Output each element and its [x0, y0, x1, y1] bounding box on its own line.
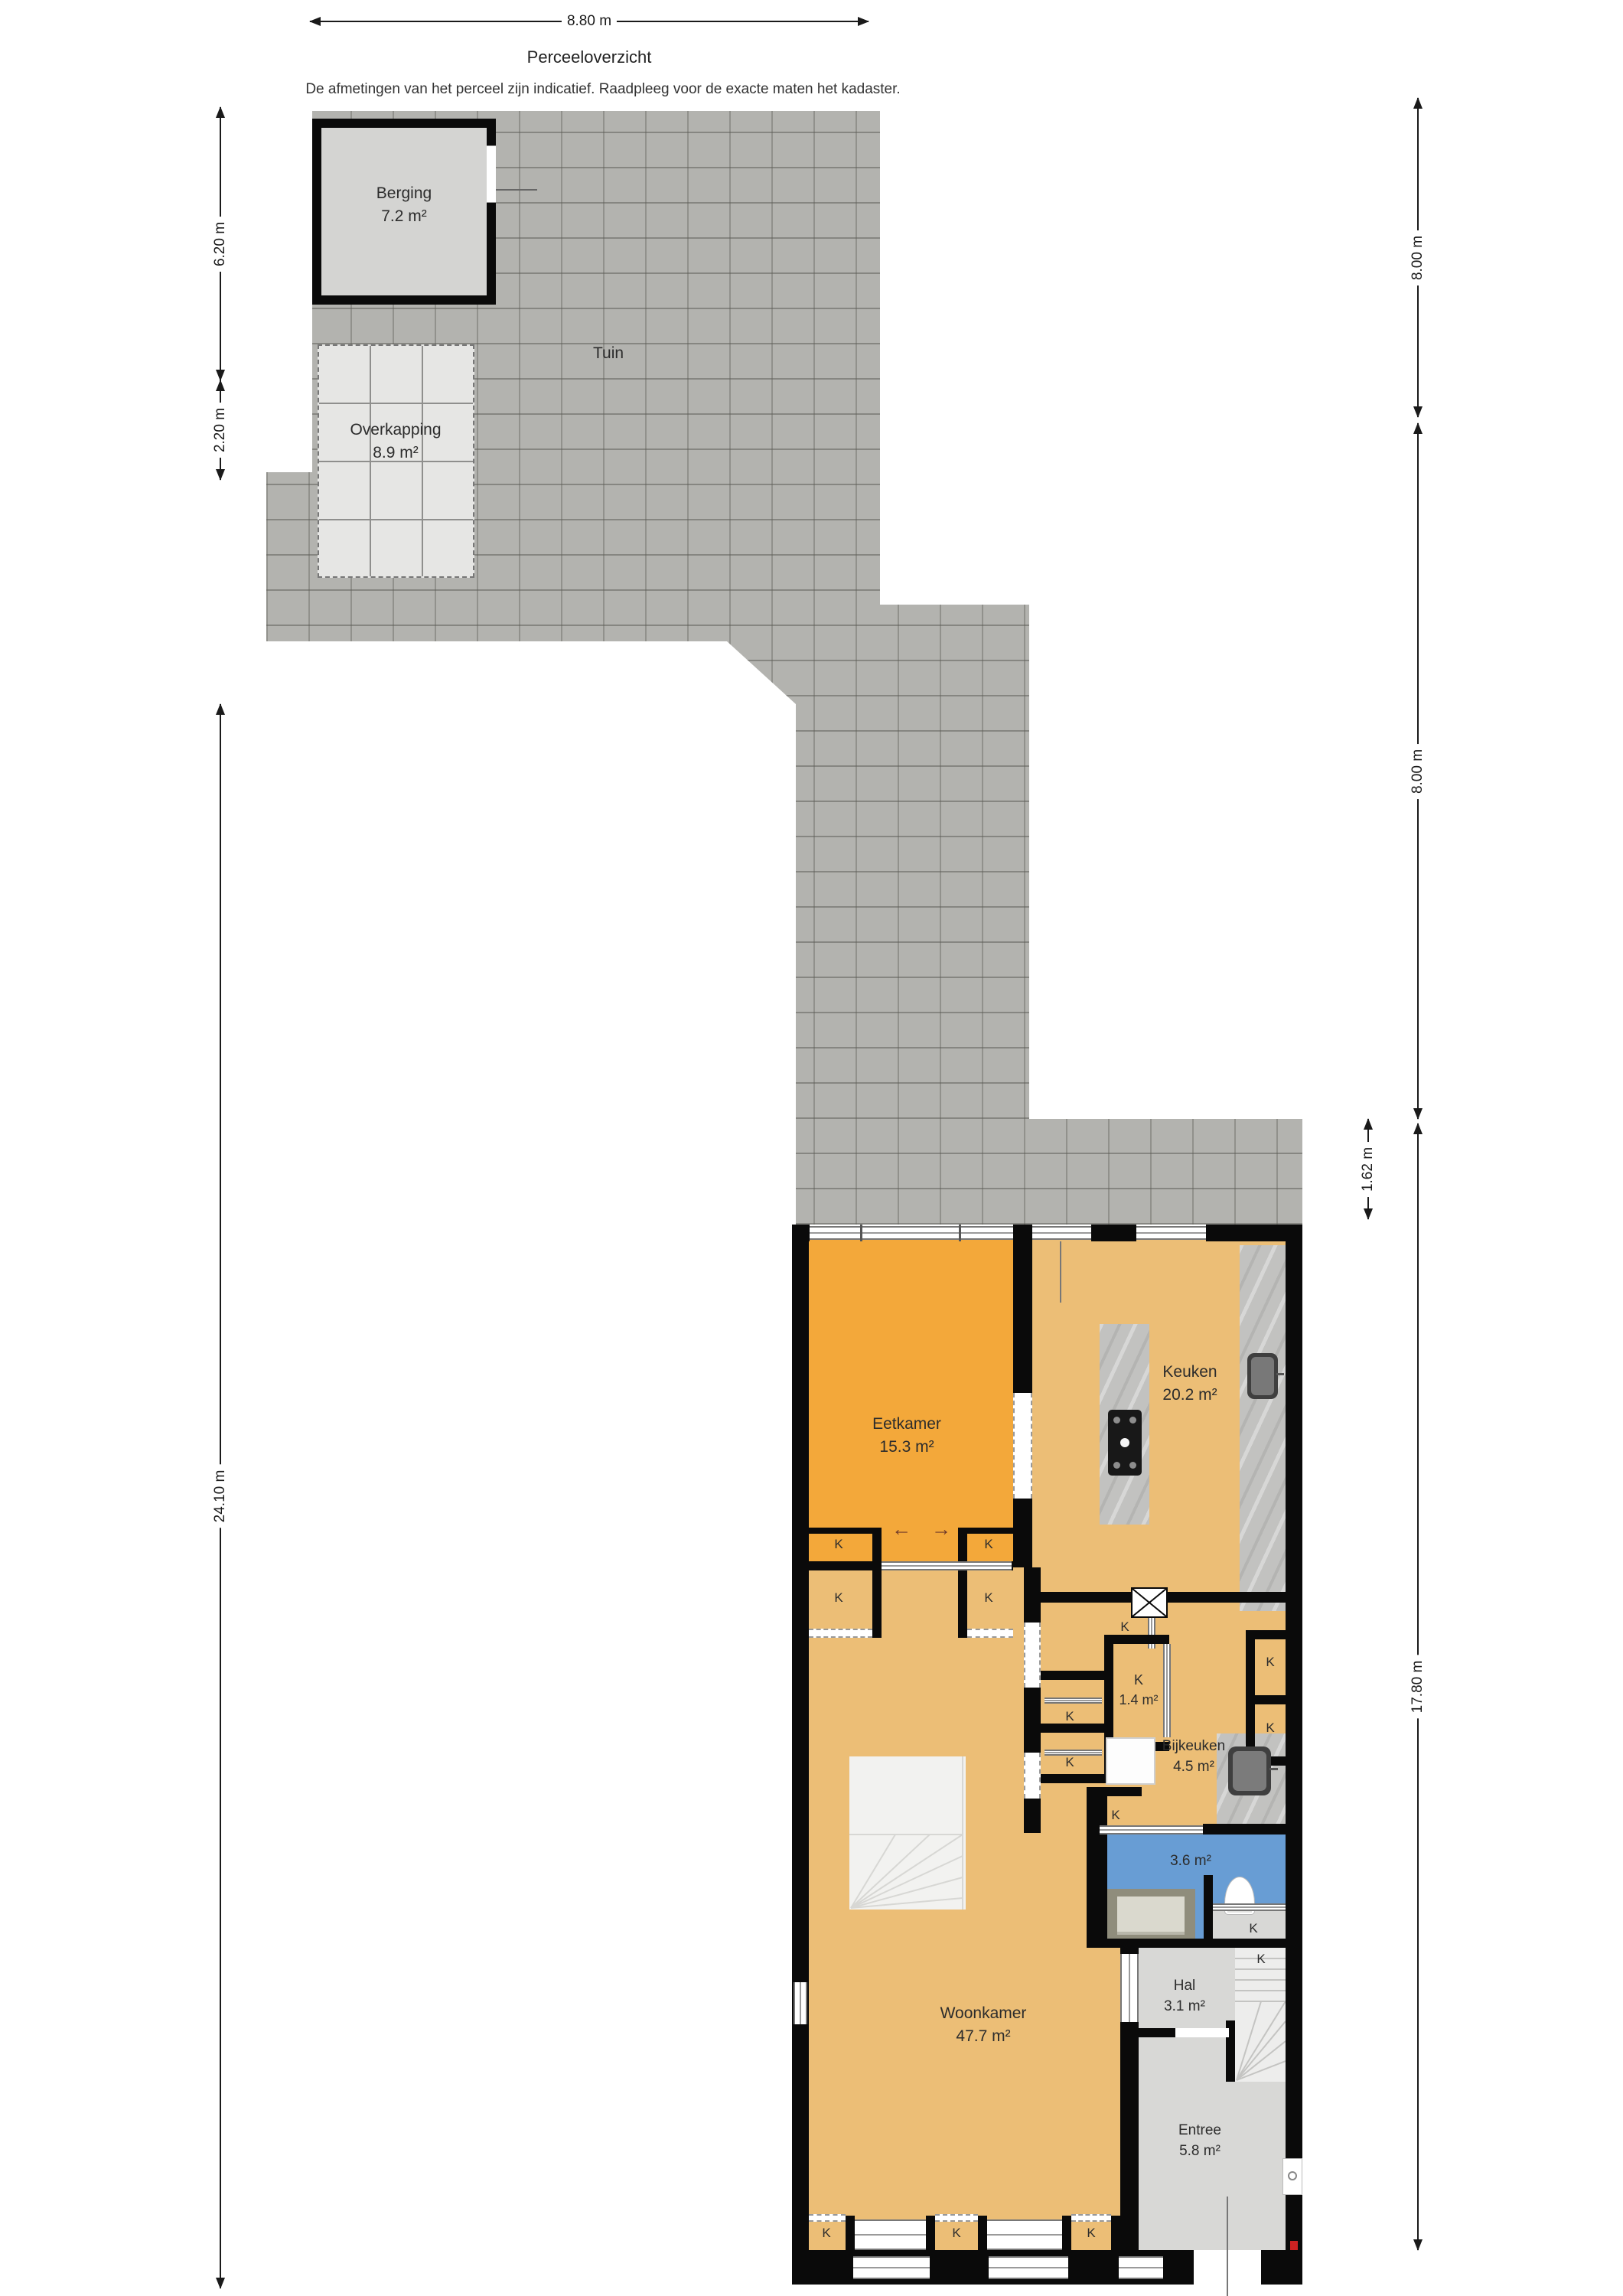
- arrowhead-down-icon: [1413, 1108, 1423, 1120]
- front-door-axis: [1227, 2197, 1228, 2296]
- closet-front: [967, 1629, 1013, 1638]
- overkapping-name: Overkapping: [350, 419, 441, 442]
- wall: [1041, 1724, 1104, 1733]
- door-opening: [1024, 1753, 1041, 1799]
- wall: [1168, 1592, 1286, 1603]
- door-opening: [1175, 2028, 1229, 2037]
- kitchen-counter: [1240, 1245, 1286, 1611]
- closet-label: K: [1111, 1808, 1119, 1823]
- window: [810, 1226, 1013, 1240]
- arrowhead-up-icon: [1364, 1118, 1373, 1130]
- closet-label: K: [984, 1537, 992, 1552]
- washing-machine-icon: [1106, 1737, 1155, 1785]
- dimension-right-middle: 8.00 m: [1410, 423, 1426, 1119]
- window-recess: [855, 2219, 926, 2250]
- entree-area: 5.8 m²: [1178, 2141, 1221, 2161]
- burner: [1129, 1462, 1136, 1469]
- berging-door-opening: [487, 145, 496, 203]
- wall: [1203, 1824, 1286, 1835]
- hal-name: Hal: [1164, 1975, 1205, 1996]
- dimension-label: 8.00 m: [1409, 230, 1427, 285]
- x-brace-icon: [1133, 1589, 1166, 1616]
- meter-niche: [1282, 2158, 1302, 2195]
- wall: [1041, 1774, 1104, 1783]
- faucet: [1269, 1768, 1278, 1770]
- wall: [1255, 1695, 1286, 1704]
- entree-name: Entree: [1178, 2120, 1221, 2141]
- dimension-left-total: 24.10 m: [213, 704, 228, 2288]
- faucet: [1276, 1373, 1284, 1375]
- window-recess: [987, 2219, 1062, 2250]
- keuken-label: Keuken 20.2 m²: [1162, 1361, 1217, 1407]
- door-opening: [1024, 1623, 1041, 1688]
- dimension-label: 8.00 m: [1409, 743, 1427, 798]
- kitchen-sink-icon: [1247, 1353, 1278, 1399]
- closet-label: K: [1065, 1755, 1074, 1770]
- arrowhead-down-icon: [216, 469, 225, 481]
- wall: [1087, 1939, 1302, 1948]
- eetkamer-area: 15.3 m²: [872, 1436, 941, 1459]
- woonkamer-name: Woonkamer: [940, 2002, 1027, 2025]
- closet-label: K: [1266, 1720, 1274, 1736]
- dimension-label: 24.10 m: [211, 1465, 230, 1528]
- dimension-top-width: 8.80 m: [310, 12, 869, 31]
- arrowhead-left-icon: [309, 17, 321, 26]
- dimension-right-strip: 1.62 m: [1361, 1119, 1376, 1219]
- keuken-name: Keuken: [1162, 1361, 1217, 1384]
- berging-label: Berging 7.2 m²: [376, 182, 432, 228]
- wall: [1286, 1225, 1302, 2285]
- kast-area: 1.4 m²: [1119, 1690, 1158, 1710]
- woonkamer-label: Woonkamer 47.7 m²: [940, 2002, 1027, 2048]
- arrowhead-up-icon: [216, 106, 225, 118]
- dimension-label: 17.80 m: [1409, 1655, 1427, 1719]
- sliding-door-track: [1100, 1825, 1203, 1835]
- closet-label: K: [834, 1590, 842, 1606]
- arrowhead-up-icon: [216, 703, 225, 715]
- eetkamer-label: Eetkamer 15.3 m²: [872, 1413, 941, 1459]
- wall: [978, 2216, 987, 2250]
- wall: [1032, 1592, 1131, 1603]
- closet-rail: [1045, 1698, 1102, 1704]
- eetkamer-floor: [809, 1238, 1013, 1561]
- bijkeuken-sink-icon: [1228, 1746, 1271, 1795]
- sliding-door-arrow-left-icon: ←: [891, 1518, 911, 1541]
- dimension-left-lower: 2.20 m: [213, 380, 228, 480]
- window: [853, 2256, 930, 2279]
- wall: [1041, 1671, 1104, 1680]
- arrowhead-down-icon: [1364, 1208, 1373, 1220]
- arrowhead-up-icon: [216, 380, 225, 391]
- hal-label: Hal 3.1 m²: [1164, 1975, 1205, 2017]
- canopy-grid-line: [319, 403, 473, 404]
- door-axis: [1060, 1241, 1061, 1303]
- window: [1213, 1903, 1286, 1911]
- closet-front: [809, 1629, 872, 1638]
- wall: [1087, 1787, 1107, 1948]
- closet-label: K: [1256, 1952, 1265, 1967]
- closet-label: K: [1120, 1619, 1129, 1635]
- closet-label: K: [834, 1537, 842, 1552]
- stairs-steps-icon: [1235, 1948, 1286, 2082]
- window: [1136, 1226, 1206, 1240]
- wall: [1096, 1787, 1142, 1796]
- wall: [809, 1528, 882, 1534]
- knob: [1120, 1438, 1129, 1447]
- closet-label: K: [952, 2226, 960, 2241]
- window-mullion: [959, 1225, 961, 1241]
- dimension-label: 2.20 m: [211, 403, 230, 458]
- badkamer-label: 3.6 m²: [1170, 1850, 1211, 1873]
- eetkamer-name: Eetkamer: [872, 1413, 941, 1436]
- wall: [1013, 1499, 1032, 1567]
- arrowhead-up-icon: [1413, 422, 1423, 434]
- closet-label: K: [1087, 2226, 1095, 2241]
- bijkeuken-name: Bijkeuken: [1162, 1736, 1225, 1756]
- closet-label: K: [984, 1590, 992, 1606]
- meter-red-mark: [1290, 2241, 1298, 2250]
- wall: [1091, 1225, 1136, 1241]
- sliding-door-track: [882, 1561, 1012, 1570]
- arrowhead-down-icon: [216, 2278, 225, 2289]
- tuin-label: Tuin: [593, 344, 624, 363]
- wall: [1104, 1635, 1169, 1644]
- stairs-woonkamer: [849, 1756, 966, 1910]
- wall: [1013, 1241, 1032, 1393]
- woonkamer-area: 47.7 m²: [940, 2025, 1027, 2048]
- dimension-label: 8.80 m: [562, 12, 617, 31]
- badkamer-area: 3.6 m²: [1170, 1850, 1211, 1873]
- floorplan-page: 8.80 m Perceeloverzicht De afmetingen va…: [0, 0, 1623, 2296]
- arrowhead-up-icon: [1413, 97, 1423, 109]
- stairs-steps-icon: [849, 1756, 966, 1910]
- sink-basin: [1251, 1357, 1274, 1395]
- window-mullion: [860, 1225, 862, 1241]
- wall: [1013, 1225, 1032, 1241]
- dimension-left-upper: 6.20 m: [213, 107, 228, 380]
- closet-front: [809, 2214, 846, 2222]
- arrowhead-down-icon: [1413, 406, 1423, 418]
- window: [794, 1982, 807, 2024]
- kast-label: K 1.4 m²: [1119, 1670, 1158, 1710]
- wall: [792, 1225, 809, 2285]
- sliding-door-track: [1163, 1644, 1171, 1737]
- closet-label: K: [1266, 1655, 1274, 1670]
- arrowhead-down-icon: [1413, 2239, 1423, 2251]
- wall: [1255, 1630, 1286, 1639]
- wall: [958, 1531, 967, 1638]
- meter-box: [1286, 2198, 1302, 2242]
- dimension-label: 6.20 m: [211, 216, 230, 271]
- closet-front: [1071, 2214, 1111, 2222]
- sink-basin: [1233, 1751, 1266, 1791]
- glass-door-x: [1131, 1587, 1168, 1618]
- closet-label: K: [822, 2226, 830, 2241]
- glass-door: [1120, 1954, 1139, 2022]
- berging-area: 7.2 m²: [376, 205, 432, 228]
- sliding-door-track: [1148, 1618, 1155, 1649]
- wall: [1087, 1824, 1100, 1835]
- entree-label: Entree 5.8 m²: [1178, 2120, 1221, 2161]
- wall: [1062, 2216, 1071, 2250]
- bijkeuken-area: 4.5 m²: [1162, 1756, 1225, 1777]
- door-opening: [1013, 1393, 1032, 1499]
- kast-name: K: [1119, 1670, 1158, 1690]
- cooktop-icon: [1108, 1410, 1142, 1476]
- burner: [1113, 1417, 1120, 1424]
- window: [989, 2256, 1068, 2279]
- arrowhead-right-icon: [858, 17, 869, 26]
- bijkeuken-label: Bijkeuken 4.5 m²: [1162, 1736, 1225, 1777]
- overkapping-label: Overkapping 8.9 m²: [350, 419, 441, 465]
- overkapping-area: 8.9 m²: [350, 442, 441, 465]
- wall: [926, 2216, 935, 2250]
- wall: [809, 1561, 872, 1570]
- wall: [1246, 1630, 1255, 1766]
- window: [1119, 2256, 1163, 2279]
- page-title: Perceeloverzicht: [527, 47, 652, 67]
- canopy-grid-line: [319, 519, 473, 520]
- vanity-basin-icon: [1117, 1896, 1185, 1935]
- meter-icon: [1288, 2171, 1297, 2180]
- wall: [846, 2216, 855, 2250]
- wall: [1111, 2216, 1120, 2250]
- garden-door-opening: [1032, 1226, 1091, 1240]
- wall: [1204, 1875, 1213, 1948]
- dimension-right-upper: 8.00 m: [1410, 98, 1426, 417]
- stairs: [1235, 1948, 1286, 2082]
- burner: [1113, 1462, 1120, 1469]
- berging-name: Berging: [376, 182, 432, 205]
- dimension-label: 1.62 m: [1359, 1141, 1377, 1196]
- keuken-area: 20.2 m²: [1162, 1384, 1217, 1407]
- closet-label: K: [1249, 1921, 1257, 1936]
- dimension-right-house: 17.80 m: [1410, 1124, 1426, 2250]
- sliding-door-arrow-right-icon: →: [931, 1518, 951, 1541]
- disclaimer-text: De afmetingen van het perceel zijn indic…: [305, 81, 900, 98]
- closet-label: K: [1065, 1709, 1074, 1724]
- hal-area: 3.1 m²: [1164, 1996, 1205, 2017]
- arrowhead-up-icon: [1413, 1123, 1423, 1134]
- vanity: [1107, 1889, 1195, 1939]
- closet-front: [935, 2214, 978, 2222]
- burner: [1129, 1417, 1136, 1424]
- wall: [872, 1531, 882, 1638]
- berging-door-swing: [496, 189, 537, 191]
